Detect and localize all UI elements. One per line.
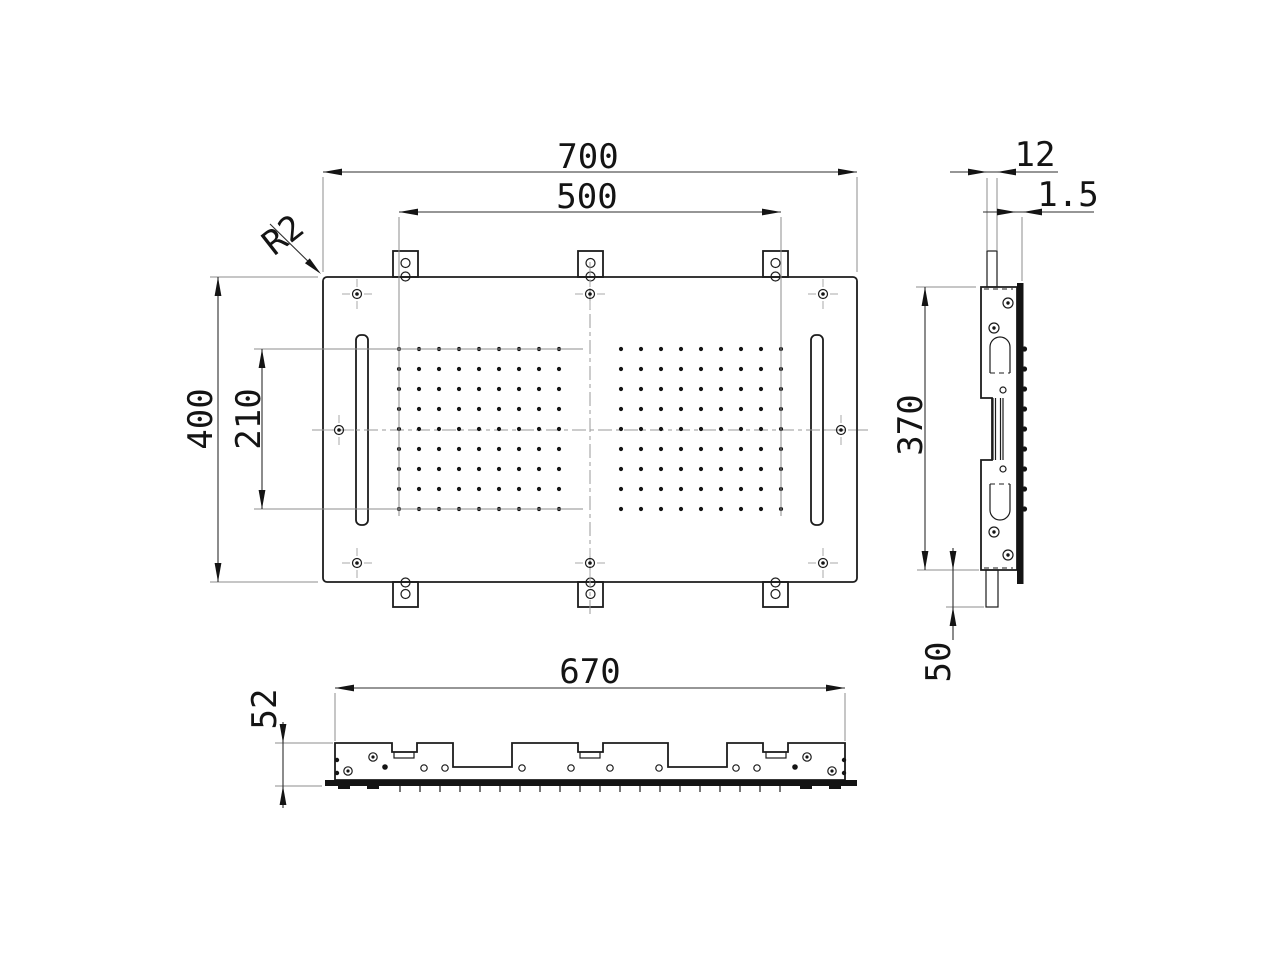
nozzle-dot bbox=[659, 507, 663, 511]
nozzle-dot bbox=[437, 367, 441, 371]
tab-hole bbox=[401, 259, 410, 268]
nozzle-dot bbox=[679, 427, 683, 431]
front-hole bbox=[733, 765, 739, 771]
side-nozzle bbox=[1022, 486, 1027, 491]
arrowhead bbox=[259, 349, 266, 368]
nozzle-dot bbox=[759, 387, 763, 391]
nozzle-dot bbox=[679, 347, 683, 351]
nozzle-dot bbox=[537, 467, 541, 471]
nozzle-dot bbox=[437, 447, 441, 451]
nozzle-dot bbox=[537, 387, 541, 391]
nozzle-dot bbox=[517, 367, 521, 371]
nozzle-dot bbox=[739, 447, 743, 451]
front-hole bbox=[754, 765, 760, 771]
nozzle-dot bbox=[639, 447, 643, 451]
front-hole bbox=[568, 765, 574, 771]
nozzle-dot bbox=[537, 487, 541, 491]
nozzle-dot bbox=[517, 447, 521, 451]
dim-370-label: 370 bbox=[891, 394, 931, 455]
nozzle-dot bbox=[417, 427, 421, 431]
center-channel bbox=[993, 398, 1003, 460]
side-view bbox=[981, 251, 1027, 607]
nozzle-dot bbox=[537, 447, 541, 451]
arrowhead bbox=[838, 169, 857, 176]
nozzle-dot bbox=[759, 467, 763, 471]
nozzle-dot bbox=[557, 447, 561, 451]
dim-670-label: 670 bbox=[559, 652, 620, 692]
front-holes bbox=[335, 753, 846, 775]
dim-500-label: 500 bbox=[556, 177, 617, 217]
front-profile-outline bbox=[335, 743, 845, 780]
nozzle-dot bbox=[517, 387, 521, 391]
nozzle-dot bbox=[477, 427, 481, 431]
front-end-dash bbox=[829, 786, 841, 789]
nozzle-dot bbox=[739, 367, 743, 371]
nozzle-dot bbox=[417, 487, 421, 491]
crosshair-mark bbox=[826, 415, 856, 445]
nozzle-dot bbox=[457, 447, 461, 451]
nozzle-dot bbox=[557, 427, 561, 431]
crosshair-mark bbox=[808, 548, 838, 578]
front-hole bbox=[519, 765, 525, 771]
nozzle-dot bbox=[517, 427, 521, 431]
nozzle-dot bbox=[619, 427, 623, 431]
face-plate-edge bbox=[1017, 283, 1024, 584]
nozzle-dot bbox=[719, 467, 723, 471]
tab-hole bbox=[771, 259, 780, 268]
upper-keyhole-slot bbox=[990, 337, 1010, 373]
front-rivet bbox=[382, 764, 388, 770]
nozzle-dot bbox=[679, 467, 683, 471]
nozzle-dot bbox=[639, 407, 643, 411]
edge-notch bbox=[842, 771, 846, 775]
nozzle-dot bbox=[497, 407, 501, 411]
nozzle-dot bbox=[477, 487, 481, 491]
nozzle-dot bbox=[417, 367, 421, 371]
side-nozzle bbox=[1022, 346, 1027, 351]
nozzle-dot bbox=[477, 387, 481, 391]
dimensions: 700 500 400 210 R2 12 1.5 370 50 670 52 bbox=[181, 135, 1099, 808]
dim-50-label: 50 bbox=[919, 642, 959, 683]
arrowhead bbox=[997, 169, 1016, 176]
arrowhead bbox=[826, 685, 845, 692]
arrowhead bbox=[950, 551, 957, 570]
crosshair-mark bbox=[575, 548, 605, 578]
technical-drawing-canvas: 700 500 400 210 R2 12 1.5 370 50 670 52 bbox=[0, 0, 1280, 960]
front-view bbox=[325, 743, 857, 792]
nozzle-dot bbox=[437, 407, 441, 411]
nozzle-dot bbox=[437, 427, 441, 431]
side-nozzle bbox=[1022, 426, 1027, 431]
nozzle-dot bbox=[557, 387, 561, 391]
nozzle-dot bbox=[699, 347, 703, 351]
arrowhead bbox=[922, 551, 929, 570]
nozzle-dot bbox=[639, 427, 643, 431]
nozzle-dot bbox=[679, 387, 683, 391]
arrowhead bbox=[950, 607, 957, 626]
nozzle-dot bbox=[719, 387, 723, 391]
front-nozzle-ticks bbox=[338, 786, 841, 792]
arrowhead bbox=[215, 563, 222, 582]
nozzle-dot bbox=[679, 487, 683, 491]
nozzle-dot bbox=[679, 407, 683, 411]
nozzle-dot bbox=[477, 447, 481, 451]
nozzle-dot bbox=[679, 507, 683, 511]
nozzle-dot bbox=[699, 487, 703, 491]
nozzle-dot bbox=[679, 367, 683, 371]
arrowhead bbox=[259, 490, 266, 509]
crosshair-mark bbox=[342, 279, 372, 309]
drawing-sheet: 700 500 400 210 R2 12 1.5 370 50 670 52 bbox=[0, 0, 1280, 960]
bottom-tab bbox=[393, 582, 418, 607]
nozzle-dot bbox=[417, 407, 421, 411]
nozzle-dot bbox=[759, 407, 763, 411]
tab-hole bbox=[401, 590, 410, 599]
nozzle-dot bbox=[619, 387, 623, 391]
nozzle-dot bbox=[619, 507, 623, 511]
nozzle-dot bbox=[659, 427, 663, 431]
front-hole bbox=[421, 765, 427, 771]
top-view bbox=[312, 251, 868, 615]
nozzle-dot bbox=[679, 447, 683, 451]
nozzle-dot bbox=[699, 367, 703, 371]
crosshair-mark bbox=[808, 279, 838, 309]
dim-700-label: 700 bbox=[557, 137, 618, 177]
nozzle-dot bbox=[517, 407, 521, 411]
nozzle-dot bbox=[719, 407, 723, 411]
nozzle-dot bbox=[659, 347, 663, 351]
nozzle-dot bbox=[537, 367, 541, 371]
nozzle-dot bbox=[619, 487, 623, 491]
bottom-tab bbox=[763, 582, 788, 607]
nozzle-dot bbox=[739, 507, 743, 511]
nozzle-dot bbox=[639, 507, 643, 511]
nozzle-dot bbox=[619, 467, 623, 471]
nozzle-dot bbox=[739, 487, 743, 491]
nozzle-dot bbox=[457, 427, 461, 431]
crosshair-mark bbox=[575, 279, 605, 309]
arrowhead bbox=[335, 685, 354, 692]
nozzle-dot bbox=[639, 347, 643, 351]
arrowhead bbox=[323, 169, 342, 176]
nozzle-dot bbox=[557, 467, 561, 471]
nozzle-dot bbox=[759, 427, 763, 431]
top-tab bbox=[763, 251, 788, 277]
nozzle-dot bbox=[537, 427, 541, 431]
arrowhead bbox=[968, 169, 987, 176]
nozzle-dot bbox=[497, 447, 501, 451]
nozzle-dot bbox=[759, 347, 763, 351]
tab-hole bbox=[771, 590, 780, 599]
nozzle-dot bbox=[437, 487, 441, 491]
front-face-plate bbox=[325, 780, 857, 786]
side-nozzle bbox=[1022, 446, 1027, 451]
front-end-dash bbox=[338, 786, 350, 789]
nozzle-dot bbox=[639, 387, 643, 391]
side-nozzle bbox=[1022, 386, 1027, 391]
nozzle-dot bbox=[619, 447, 623, 451]
edge-notch bbox=[842, 758, 846, 762]
nozzle-dot bbox=[497, 367, 501, 371]
crosshair-mark bbox=[324, 415, 354, 445]
edge-notch bbox=[335, 771, 339, 775]
nozzle-dot bbox=[699, 447, 703, 451]
nozzle-dot bbox=[739, 387, 743, 391]
nozzle-dot bbox=[759, 487, 763, 491]
nozzle-dot bbox=[739, 467, 743, 471]
arrowhead bbox=[997, 209, 1016, 216]
nozzle-dot bbox=[719, 347, 723, 351]
edge-notch bbox=[335, 758, 339, 762]
nozzle-dot bbox=[719, 507, 723, 511]
nozzle-dot bbox=[699, 407, 703, 411]
nozzle-dot bbox=[719, 427, 723, 431]
nozzle-dot bbox=[497, 387, 501, 391]
nozzle-dot bbox=[739, 347, 743, 351]
side-nozzle bbox=[1022, 366, 1027, 371]
nozzle-dot bbox=[659, 367, 663, 371]
nozzle-dot bbox=[659, 467, 663, 471]
nozzle-dot bbox=[739, 407, 743, 411]
side-pin-hole bbox=[1000, 387, 1006, 393]
arrowhead bbox=[280, 786, 287, 805]
front-hole bbox=[656, 765, 662, 771]
nozzle-dot bbox=[497, 467, 501, 471]
front-end-dash bbox=[367, 786, 379, 789]
nozzle-dot bbox=[619, 347, 623, 351]
dim-400-label: 400 bbox=[181, 388, 221, 449]
arrowhead bbox=[215, 277, 222, 296]
dim-12-label: 12 bbox=[1015, 135, 1056, 175]
nozzle-dot bbox=[517, 487, 521, 491]
nozzle-dot bbox=[457, 367, 461, 371]
nozzle-dot bbox=[639, 367, 643, 371]
dim-52-label: 52 bbox=[245, 689, 285, 730]
dim-210-label: 210 bbox=[229, 388, 269, 449]
nozzle-dot bbox=[619, 367, 623, 371]
front-rivet bbox=[792, 764, 798, 770]
nozzle-dot bbox=[719, 487, 723, 491]
arrowhead bbox=[399, 209, 418, 216]
nozzle-dot bbox=[759, 367, 763, 371]
nozzle-dot bbox=[659, 387, 663, 391]
nozzle-dot bbox=[699, 467, 703, 471]
nozzle-dot bbox=[477, 367, 481, 371]
top-tab bbox=[393, 251, 418, 277]
nozzle-dot bbox=[437, 467, 441, 471]
side-nozzle bbox=[1022, 466, 1027, 471]
nozzle-dot bbox=[477, 407, 481, 411]
nozzle-dot bbox=[457, 387, 461, 391]
nozzle-dot bbox=[557, 367, 561, 371]
nozzle-dot bbox=[417, 387, 421, 391]
nozzle-dot bbox=[699, 507, 703, 511]
front-hole bbox=[607, 765, 613, 771]
side-pin-hole bbox=[1000, 466, 1006, 472]
side-bottom-tab bbox=[986, 570, 998, 607]
nozzle-dot bbox=[437, 387, 441, 391]
side-top-tab bbox=[987, 251, 997, 287]
front-hole bbox=[442, 765, 448, 771]
nozzle-dot bbox=[639, 467, 643, 471]
nozzle-dot bbox=[557, 487, 561, 491]
dimension-lines bbox=[210, 169, 1094, 808]
nozzle-dot bbox=[457, 467, 461, 471]
nozzle-dot bbox=[619, 407, 623, 411]
nozzle-dot bbox=[639, 487, 643, 491]
side-nozzle bbox=[1022, 406, 1027, 411]
nozzle-dot bbox=[659, 487, 663, 491]
nozzle-dot bbox=[719, 367, 723, 371]
nozzle-dot bbox=[457, 487, 461, 491]
nozzle-dot bbox=[477, 467, 481, 471]
nozzle-dot bbox=[699, 427, 703, 431]
side-nozzle bbox=[1022, 506, 1027, 511]
nozzle-dot bbox=[759, 507, 763, 511]
nozzle-dot bbox=[537, 407, 541, 411]
nozzle-dot bbox=[557, 407, 561, 411]
nozzle-dot bbox=[517, 467, 521, 471]
nozzle-dot bbox=[417, 467, 421, 471]
nozzle-dot bbox=[659, 447, 663, 451]
nozzle-dot bbox=[699, 387, 703, 391]
arrowhead bbox=[762, 209, 781, 216]
lower-keyhole-slot bbox=[990, 484, 1010, 520]
nozzle-dot bbox=[719, 447, 723, 451]
nozzle-dot bbox=[759, 447, 763, 451]
arrowhead bbox=[922, 287, 929, 306]
nozzle-dot bbox=[659, 407, 663, 411]
nozzle-dot bbox=[497, 487, 501, 491]
nozzle-dot bbox=[739, 427, 743, 431]
nozzle-dot bbox=[457, 407, 461, 411]
radius-r2-label: R2 bbox=[255, 207, 312, 264]
front-end-dash bbox=[800, 786, 812, 789]
nozzle-dot bbox=[417, 447, 421, 451]
dim-1-5-label: 1.5 bbox=[1037, 175, 1098, 215]
crosshair-mark bbox=[342, 548, 372, 578]
nozzle-dot bbox=[497, 427, 501, 431]
